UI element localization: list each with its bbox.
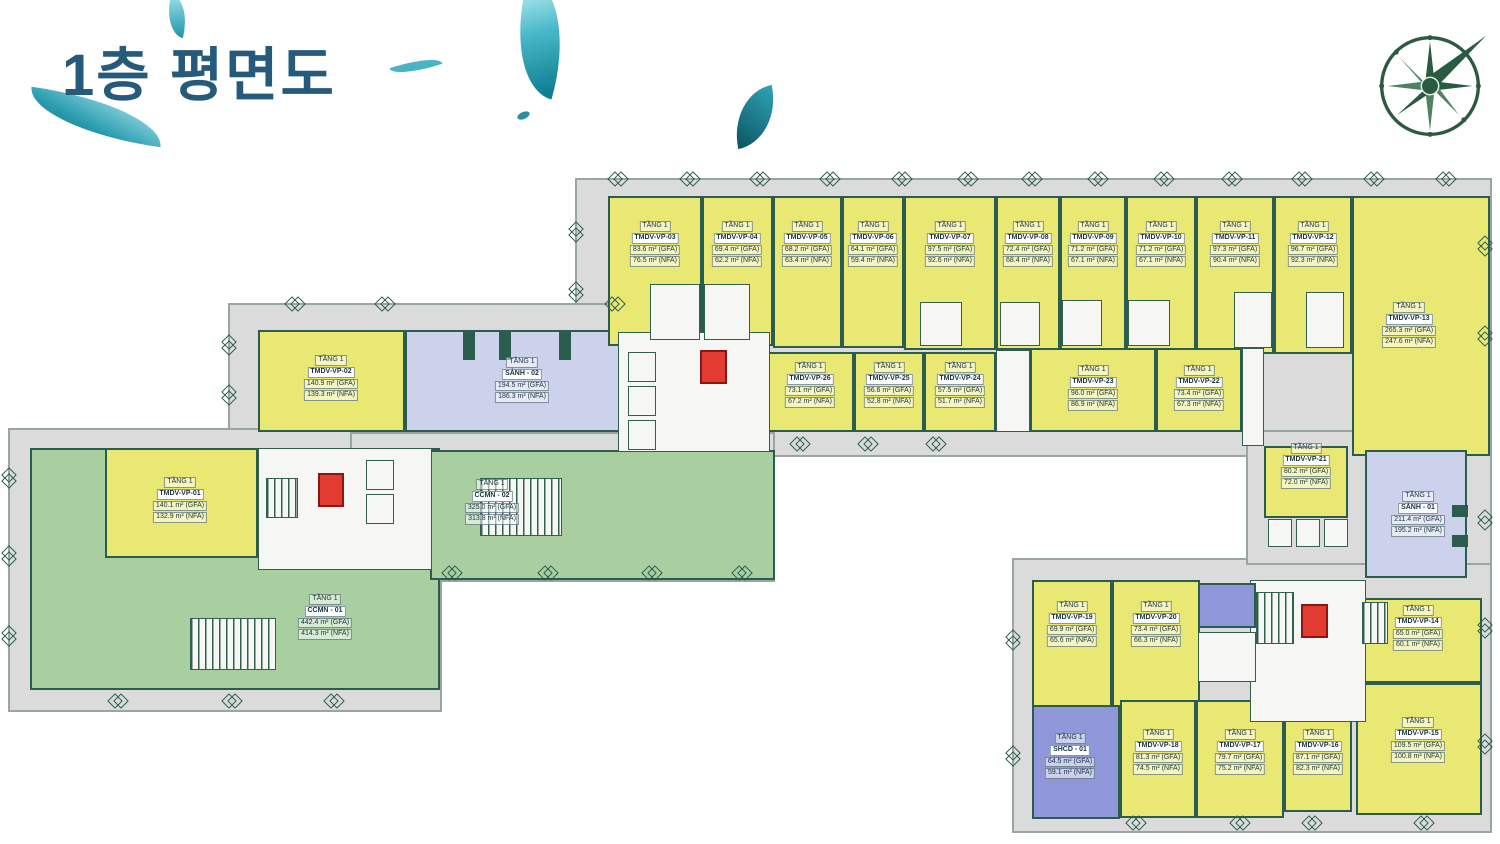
unit-area-nfa: 82.3 m² (NFA) — [1293, 764, 1343, 775]
core-room — [1000, 302, 1040, 346]
core-room — [1198, 632, 1256, 682]
unit-code: CCMN - 02 — [471, 491, 512, 502]
unit-area-nfa: 63.4 m² (NFA) — [782, 256, 832, 267]
unit-label: TẦNG 1TMDV-VP-2673.1 m² (GFA)67.2 m² (NF… — [785, 362, 835, 408]
unit-area-gfa: 140.1 m² (GFA) — [153, 501, 207, 512]
unit-code: TMDV-VP-07 — [926, 233, 973, 244]
unit-code: TMDV-VP-03 — [631, 233, 678, 244]
core-room — [1324, 519, 1348, 547]
unit-floor-label: TẦNG 1 — [639, 221, 670, 232]
unit-label: TẦNG 1TMDV-VP-1687.1 m² (GFA)82.3 m² (NF… — [1293, 729, 1343, 775]
core-room — [1128, 300, 1170, 346]
unit-area-gfa: 73.1 m² (GFA) — [785, 386, 835, 397]
unit-area-gfa: 96.0 m² (GFA) — [1068, 389, 1118, 400]
window-icon — [224, 337, 235, 354]
unit-code: TMDV-VP-20 — [1132, 613, 1179, 624]
unit-floor-label: TẦNG 1 — [794, 362, 825, 373]
core-room — [704, 284, 750, 340]
unit-area-nfa: 67.3 m² (NFA) — [1174, 400, 1224, 411]
window-icon — [540, 568, 557, 579]
unit-label: TẦNG 1TMDV-VP-0383.6 m² (GFA)76.5 m² (NF… — [630, 221, 680, 267]
unit-area-nfa: 92.6 m² (NFA) — [925, 256, 975, 267]
unit-label: TẦNG 1SHCD - 0164.5 m² (GFA)59.1 m² (NFA… — [1045, 733, 1095, 779]
window-icon — [644, 568, 661, 579]
unit-floor-label: TẦNG 1 — [1302, 729, 1333, 740]
page-title: 1층 평면도 — [62, 28, 336, 112]
unit-area-nfa: 65.6 m² (NFA) — [1047, 636, 1097, 647]
unit-label: TẦNG 1TMDV-VP-0797.5 m² (GFA)92.6 m² (NF… — [925, 221, 975, 267]
core-room — [1242, 348, 1264, 446]
fire-elevator — [700, 350, 727, 384]
window-icon — [1416, 818, 1433, 829]
unit-label: TẦNG 1TMDV-VP-1071.2 m² (GFA)67.1 m² (NF… — [1136, 221, 1186, 267]
unit-area-nfa: 52.8 m² (NFA) — [864, 397, 914, 408]
unit-code: TMDV-VP-06 — [849, 233, 896, 244]
unit-floor-label: TẦNG 1 — [934, 221, 965, 232]
unit-floor-label: TẦNG 1 — [1402, 717, 1433, 728]
window-icon — [607, 299, 624, 310]
window-icon — [571, 224, 582, 241]
window-icon — [287, 299, 304, 310]
window-icon — [1156, 174, 1173, 185]
unit-label: TẦNG 1TMDV-VP-1296.7 m² (GFA)92.3 m² (NF… — [1288, 221, 1338, 267]
window-icon — [110, 696, 127, 707]
unit-service-square — [1198, 583, 1256, 628]
unit-area-nfa: 100.8 m² (NFA) — [1391, 752, 1445, 763]
unit-area-nfa: 247.6 m² (NFA) — [1382, 337, 1436, 348]
unit-label: TẦNG 1TMDV-VP-1881.3 m² (GFA)74.5 m² (NF… — [1133, 729, 1183, 775]
core-room — [996, 350, 1030, 432]
window-icon — [1128, 818, 1145, 829]
unit-area-gfa: 64.5 m² (GFA) — [1045, 757, 1095, 768]
unit-code: SHCD - 01 — [1050, 745, 1090, 756]
core-room — [1296, 519, 1320, 547]
unit-label: TẦNG 1TMDV-VP-2073.4 m² (GFA)66.3 m² (NF… — [1131, 601, 1181, 647]
unit-floor-label: TẦNG 1 — [791, 221, 822, 232]
core-room — [920, 302, 962, 346]
unit-floor-label: TẦNG 1 — [1012, 221, 1043, 232]
unit-label: TẦNG 1TMDV-VP-0971.2 m² (GFA)67.1 m² (NF… — [1068, 221, 1118, 267]
unit-floor-label: TẦNG 1 — [1077, 365, 1108, 376]
unit-code: TMDV-VP-19 — [1048, 613, 1095, 624]
unit-area-nfa: 90.4 m² (NFA) — [1210, 256, 1260, 267]
core-room — [1234, 292, 1272, 348]
unit-area-nfa: 67.1 m² (NFA) — [1068, 256, 1118, 267]
unit-area-nfa: 75.2 m² (NFA) — [1215, 764, 1265, 775]
window-icon — [822, 174, 839, 185]
window-icon — [860, 439, 877, 450]
unit-label: TẦNG 1TMDV-VP-15109.5 m² (GFA)100.8 m² (… — [1391, 717, 1445, 763]
unit-area-nfa: 313.8 m² (NFA) — [465, 514, 519, 525]
unit-floor-label: TẦNG 1 — [1142, 729, 1173, 740]
unit-label: TẦNG 1TMDV-VP-1465.0 m² (GFA)60.1 m² (NF… — [1393, 605, 1443, 651]
unit-area-gfa: 69.9 m² (GFA) — [1047, 625, 1097, 636]
unit-code: CCMN - 01 — [304, 606, 345, 617]
staircase — [190, 618, 276, 670]
unit-floor-label: TẦNG 1 — [944, 362, 975, 373]
window-icon — [928, 439, 945, 450]
unit-code: TMDV-VP-23 — [1069, 377, 1116, 388]
unit-label: TẦNG 1TMDV-VP-02140.9 m² (GFA)139.3 m² (… — [304, 355, 358, 401]
core-room — [1062, 300, 1102, 346]
unit-code: TMDV-VP-15 — [1394, 729, 1441, 740]
core-room — [1306, 292, 1344, 348]
window-icon — [1366, 174, 1383, 185]
staircase — [1256, 592, 1294, 644]
fire-elevator — [1301, 604, 1328, 638]
unit-floor-label: TẦNG 1 — [721, 221, 752, 232]
unit-area-nfa: 67.1 m² (NFA) — [1136, 256, 1186, 267]
unit-code: TMDV-VP-12 — [1289, 233, 1336, 244]
unit-area-gfa: 194.5 m² (GFA) — [495, 381, 549, 392]
unit-area-gfa: 97.3 m² (GFA) — [1210, 245, 1260, 256]
pillar — [463, 330, 475, 360]
window-icon — [792, 439, 809, 450]
unit-label: TẦNG 1TMDV-VP-0664.1 m² (GFA)59.4 m² (NF… — [848, 221, 898, 267]
window-icon — [571, 284, 582, 301]
core-room — [628, 352, 656, 382]
unit-floor-label: TẦNG 1 — [1402, 491, 1433, 502]
unit-area-gfa: 57.5 m² (GFA) — [935, 386, 985, 397]
unit-label: TẦNG 1TMDV-VP-0872.4 m² (GFA)68.4 m² (NF… — [1003, 221, 1053, 267]
unit-code: TMDV-VP-21 — [1282, 455, 1329, 466]
unit-area-nfa: 59.1 m² (NFA) — [1045, 768, 1095, 779]
unit-area-gfa: 97.5 m² (GFA) — [925, 245, 975, 256]
window-icon — [1090, 174, 1107, 185]
core-room — [650, 284, 700, 340]
pillar — [1452, 535, 1468, 547]
unit-area-gfa: 109.5 m² (GFA) — [1391, 741, 1445, 752]
unit-label: TẦNG 1TMDV-VP-1779.7 m² (GFA)75.2 m² (NF… — [1215, 729, 1265, 775]
window-icon — [1232, 818, 1249, 829]
unit-code: TMDV-VP-14 — [1394, 617, 1441, 628]
unit-floor-label: TẦNG 1 — [1077, 221, 1108, 232]
unit-floor-label: TẦNG 1 — [309, 594, 340, 605]
window-icon — [1480, 736, 1491, 753]
unit-area-gfa: 87.1 m² (GFA) — [1293, 753, 1343, 764]
unit-area-nfa: 68.4 m² (NFA) — [1003, 256, 1053, 267]
window-icon — [1480, 328, 1491, 345]
unit-floor-label: TẦNG 1 — [1183, 365, 1214, 376]
unit-floor-label: TẦNG 1 — [1140, 601, 1171, 612]
staircase — [1362, 602, 1388, 644]
window-icon — [610, 174, 627, 185]
unit-code: TMDV-VP-11 — [1212, 233, 1259, 244]
unit-area-nfa: 195.2 m² (NFA) — [1391, 526, 1445, 537]
window-icon — [326, 696, 343, 707]
unit-label: TẦNG 1TMDV-VP-01140.1 m² (GFA)132.9 m² (… — [153, 477, 207, 523]
unit-code: TMDV-VP-16 — [1294, 741, 1341, 752]
unit-area-nfa: 86.9 m² (NFA) — [1068, 400, 1118, 411]
unit-label: TẦNG 1TMDV-VP-0568.2 m² (GFA)63.4 m² (NF… — [782, 221, 832, 267]
window-icon — [1480, 620, 1491, 637]
unit-floor-label: TẦNG 1 — [1219, 221, 1250, 232]
window-icon — [960, 174, 977, 185]
pillar — [1452, 505, 1468, 517]
unit-label: TẦNG 1TMDV-VP-2273.4 m² (GFA)67.3 m² (NF… — [1174, 365, 1224, 411]
window-icon — [894, 174, 911, 185]
floor-plan: TẦNG 1CCMN - 01442.4 m² (GFA)414.3 m² (N… — [0, 0, 1500, 844]
unit-label: TẦNG 1TMDV-VP-2556.6 m² (GFA)52.8 m² (NF… — [864, 362, 914, 408]
unit-floor-label: TẦNG 1 — [315, 355, 346, 366]
unit-area-nfa: 132.9 m² (NFA) — [153, 512, 207, 523]
unit-label: TẦNG 1SẢNH - 01211.4 m² (GFA)195.2 m² (N… — [1391, 491, 1445, 537]
unit-area-nfa: 60.1 m² (NFA) — [1393, 640, 1443, 651]
unit-code: TMDV-VP-10 — [1137, 233, 1184, 244]
window-icon — [1438, 174, 1455, 185]
unit-floor-label: TẦNG 1 — [1224, 729, 1255, 740]
unit-code: TMDV-VP-04 — [713, 233, 760, 244]
unit-area-gfa: 68.2 m² (GFA) — [782, 245, 832, 256]
window-icon — [224, 696, 241, 707]
unit-label: TẦNG 1TMDV-VP-2180.2 m² (GFA)72.0 m² (NF… — [1281, 443, 1331, 489]
core-room — [1268, 519, 1292, 547]
unit-floor-label: TẦNG 1 — [164, 477, 195, 488]
unit-area-nfa: 414.3 m² (NFA) — [298, 629, 352, 640]
unit-code: TMDV-VP-05 — [783, 233, 830, 244]
window-icon — [224, 387, 235, 404]
core-room — [366, 494, 394, 524]
unit-area-gfa: 56.6 m² (GFA) — [864, 386, 914, 397]
unit-area-gfa: 140.9 m² (GFA) — [304, 379, 358, 390]
unit-code: SẢNH - 02 — [502, 369, 542, 380]
unit-area-gfa: 442.4 m² (GFA) — [298, 618, 352, 629]
unit-label: TẦNG 1CCMN - 02325.0 m² (GFA)313.8 m² (N… — [465, 479, 519, 525]
unit-code: TMDV-VP-24 — [936, 374, 983, 385]
window-icon — [1480, 238, 1491, 255]
unit-label: TẦNG 1TMDV-VP-2457.5 m² (GFA)51.7 m² (NF… — [935, 362, 985, 408]
unit-floor-label: TẦNG 1 — [476, 479, 507, 490]
window-icon — [1008, 632, 1019, 649]
unit-code: TMDV-VP-25 — [865, 374, 912, 385]
window-icon — [1008, 748, 1019, 765]
unit-area-gfa: 71.2 m² (GFA) — [1136, 245, 1186, 256]
compass-rose-icon — [1372, 28, 1488, 144]
window-icon — [1224, 174, 1241, 185]
unit-area-nfa: 51.7 m² (NFA) — [935, 397, 985, 408]
window-icon — [682, 174, 699, 185]
unit-floor-label: TẦNG 1 — [1402, 605, 1433, 616]
unit-floor-label: TẦNG 1 — [857, 221, 888, 232]
unit-code: TMDV-VP-22 — [1175, 377, 1222, 388]
unit-label: TẦNG 1CCMN - 01442.4 m² (GFA)414.3 m² (N… — [298, 594, 352, 640]
unit-area-gfa: 96.7 m² (GFA) — [1288, 245, 1338, 256]
unit-label: TẦNG 1TMDV-VP-1969.9 m² (GFA)65.6 m² (NF… — [1047, 601, 1097, 647]
unit-area-nfa: 67.2 m² (NFA) — [785, 397, 835, 408]
core-room — [366, 460, 394, 490]
unit-code: SẢNH - 01 — [1398, 503, 1438, 514]
unit-floor-label: TẦNG 1 — [873, 362, 904, 373]
unit-floor-label: TẦNG 1 — [1290, 443, 1321, 454]
window-icon — [1304, 818, 1321, 829]
unit-area-nfa: 74.5 m² (NFA) — [1133, 764, 1183, 775]
unit-label: TẦNG 1TMDV-VP-1197.3 m² (GFA)90.4 m² (NF… — [1210, 221, 1260, 267]
window-icon — [4, 548, 15, 565]
unit-area-nfa: 66.3 m² (NFA) — [1131, 636, 1181, 647]
window-icon — [4, 628, 15, 645]
unit-area-gfa: 71.2 m² (GFA) — [1068, 245, 1118, 256]
unit-code: TMDV-VP-02 — [307, 367, 354, 378]
unit-floor-label: TẦNG 1 — [1297, 221, 1328, 232]
unit-tmdv-vp-06 — [842, 196, 904, 348]
unit-area-gfa: 83.6 m² (GFA) — [630, 245, 680, 256]
unit-area-nfa: 139.3 m² (NFA) — [304, 390, 358, 401]
unit-area-gfa: 69.4 m² (GFA) — [712, 245, 762, 256]
window-icon — [444, 568, 461, 579]
unit-code: TMDV-VP-18 — [1134, 741, 1181, 752]
unit-code: TMDV-VP-26 — [786, 374, 833, 385]
core-room — [628, 420, 656, 450]
unit-area-nfa: 186.3 m² (NFA) — [495, 392, 549, 403]
unit-code: TMDV-VP-17 — [1216, 741, 1263, 752]
unit-floor-label: TẦNG 1 — [1393, 302, 1424, 313]
staircase — [266, 478, 298, 518]
unit-label: TẦNG 1TMDV-VP-2396.0 m² (GFA)86.9 m² (NF… — [1068, 365, 1118, 411]
unit-label: TẦNG 1SẢNH - 02194.5 m² (GFA)186.3 m² (N… — [495, 357, 549, 403]
unit-floor-label: TẦNG 1 — [1054, 733, 1085, 744]
window-icon — [734, 568, 751, 579]
unit-tmdv-vp-05 — [773, 196, 842, 348]
unit-area-gfa: 79.7 m² (GFA) — [1215, 753, 1265, 764]
unit-area-nfa: 59.4 m² (NFA) — [848, 256, 898, 267]
window-icon — [752, 174, 769, 185]
pillar — [559, 330, 571, 360]
unit-area-gfa: 73.4 m² (GFA) — [1174, 389, 1224, 400]
core-room — [628, 386, 656, 416]
unit-code: TMDV-VP-09 — [1069, 233, 1116, 244]
unit-area-gfa: 211.4 m² (GFA) — [1391, 515, 1445, 526]
unit-label: TẦNG 1TMDV-VP-0469.4 m² (GFA)62.2 m² (NF… — [712, 221, 762, 267]
unit-area-gfa: 72.4 m² (GFA) — [1003, 245, 1053, 256]
unit-code: TMDV-VP-13 — [1385, 314, 1432, 325]
unit-code: TMDV-VP-01 — [156, 489, 203, 500]
unit-label: TẦNG 1TMDV-VP-13265.3 m² (GFA)247.6 m² (… — [1382, 302, 1436, 348]
fire-elevator — [318, 473, 344, 507]
unit-floor-label: TẦNG 1 — [1145, 221, 1176, 232]
unit-area-gfa: 65.0 m² (GFA) — [1393, 629, 1443, 640]
unit-area-gfa: 265.3 m² (GFA) — [1382, 326, 1436, 337]
unit-area-gfa: 325.0 m² (GFA) — [465, 503, 519, 514]
window-icon — [1294, 174, 1311, 185]
pillar — [499, 330, 511, 360]
window-icon — [1480, 512, 1491, 529]
unit-area-gfa: 80.2 m² (GFA) — [1281, 467, 1331, 478]
unit-area-nfa: 62.2 m² (NFA) — [712, 256, 762, 267]
unit-area-gfa: 73.4 m² (GFA) — [1131, 625, 1181, 636]
unit-area-gfa: 64.1 m² (GFA) — [848, 245, 898, 256]
window-icon — [1024, 174, 1041, 185]
unit-code: TMDV-VP-08 — [1004, 233, 1051, 244]
unit-floor-label: TẦNG 1 — [1056, 601, 1087, 612]
unit-area-nfa: 76.5 m² (NFA) — [630, 256, 680, 267]
window-icon — [4, 470, 15, 487]
unit-floor-label: TẦNG 1 — [506, 357, 537, 368]
unit-area-nfa: 92.3 m² (NFA) — [1288, 256, 1338, 267]
unit-area-nfa: 72.0 m² (NFA) — [1281, 478, 1331, 489]
unit-area-gfa: 81.3 m² (GFA) — [1133, 753, 1183, 764]
window-icon — [377, 299, 394, 310]
